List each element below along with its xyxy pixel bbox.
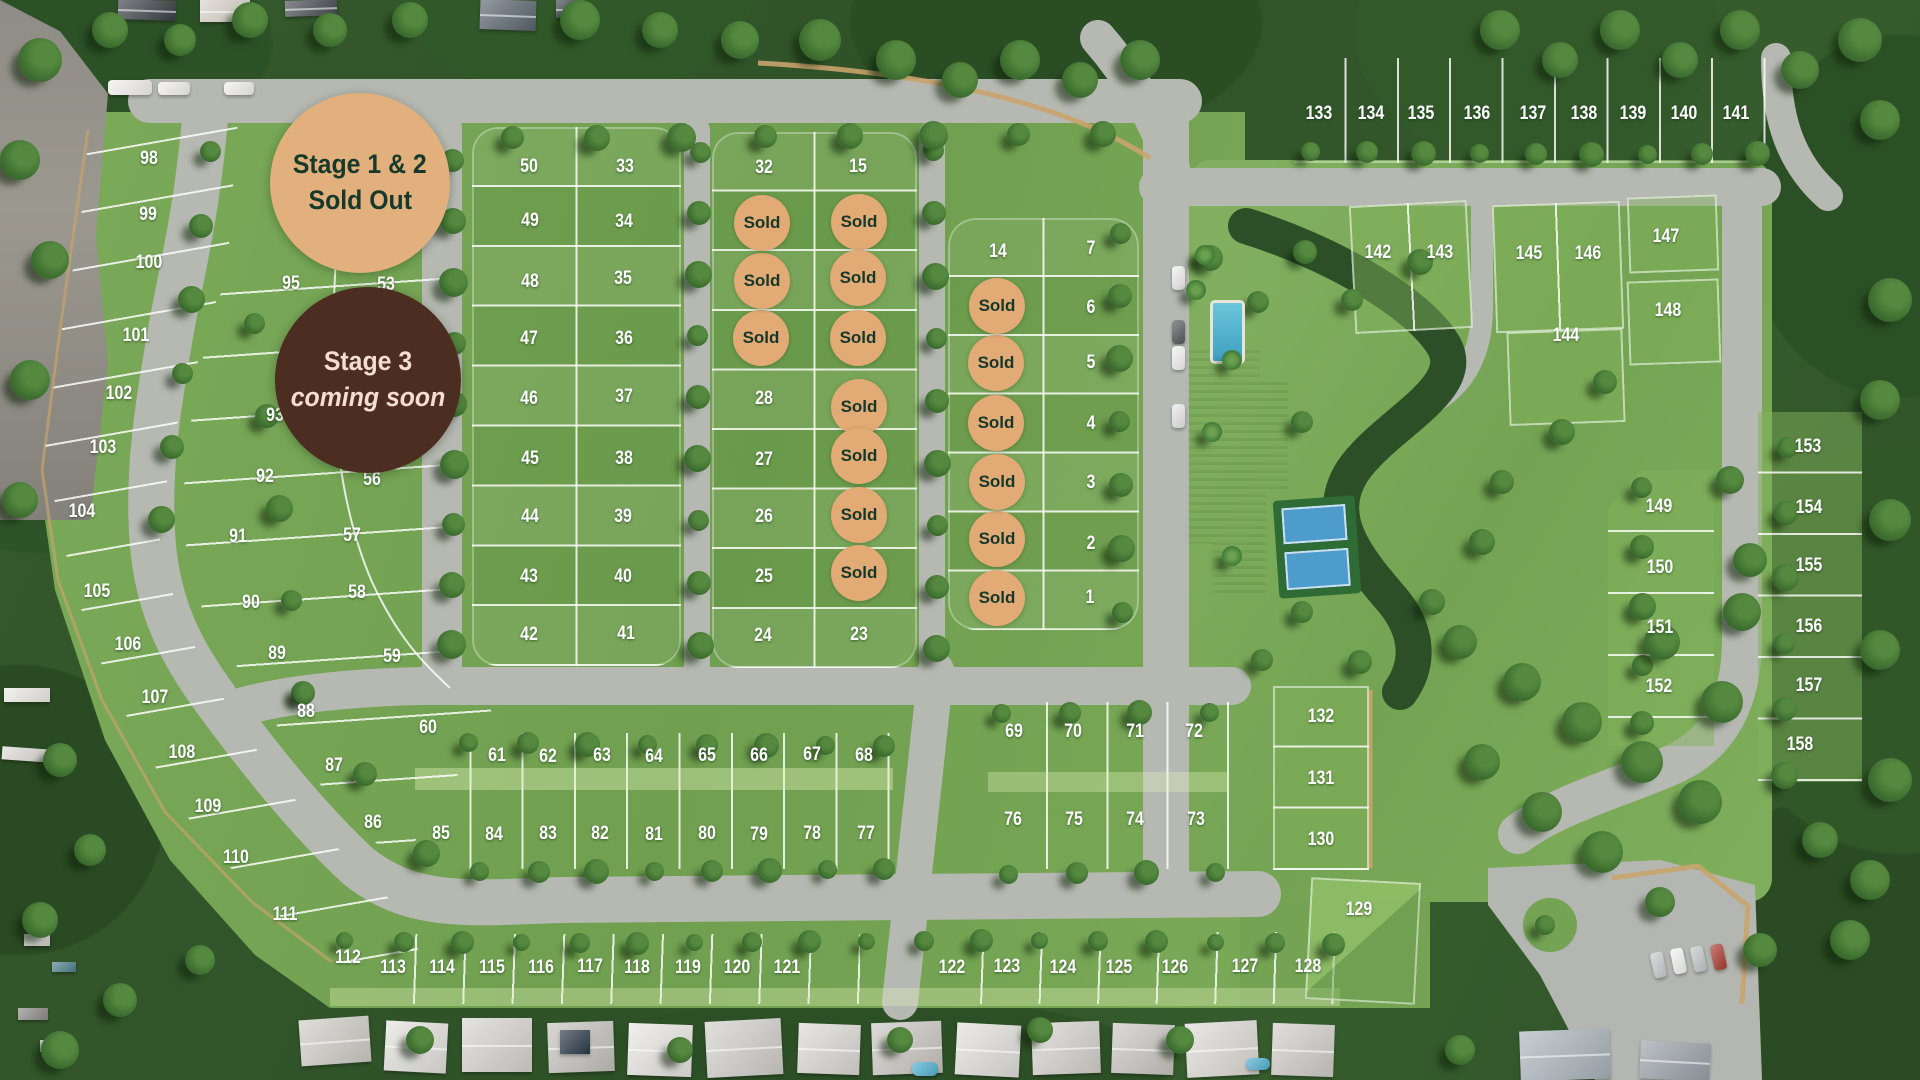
- lot-153[interactable]: 153: [1792, 436, 1824, 458]
- tree: [1469, 529, 1495, 555]
- tree: [1411, 141, 1436, 166]
- parked-car: [1172, 404, 1185, 428]
- lot-63[interactable]: 63: [591, 745, 612, 767]
- tree: [1720, 10, 1760, 50]
- tree: [876, 40, 916, 80]
- tree: [353, 762, 377, 786]
- tree: [1419, 589, 1445, 615]
- lot-122[interactable]: 122: [936, 957, 968, 979]
- lot-69[interactable]: 69: [1003, 721, 1024, 743]
- tree: [970, 929, 993, 952]
- lot-84[interactable]: 84: [483, 824, 504, 846]
- lot-41[interactable]: 41: [615, 623, 636, 645]
- tree: [1542, 42, 1578, 78]
- sold-badge-lot-16[interactable]: Sold: [831, 194, 887, 250]
- lot-151[interactable]: 151: [1644, 617, 1676, 639]
- lot-100[interactable]: 100: [133, 252, 165, 274]
- tree: [1868, 758, 1912, 802]
- house-roof: [1519, 1028, 1611, 1080]
- tree: [1166, 1026, 1194, 1054]
- lot-80[interactable]: 80: [696, 823, 717, 845]
- tree: [1733, 543, 1767, 577]
- tree: [442, 513, 465, 536]
- house-roof: [479, 0, 536, 31]
- lot-158[interactable]: 158: [1784, 734, 1816, 756]
- lot-156[interactable]: 156: [1793, 616, 1825, 638]
- stage-1-2-title: Stage 1 & 2: [293, 150, 427, 180]
- tree: [919, 121, 948, 150]
- tree: [1645, 887, 1675, 917]
- tree: [1630, 535, 1654, 559]
- lot-113[interactable]: 113: [378, 957, 409, 979]
- tree: [185, 945, 215, 975]
- tree: [923, 635, 950, 662]
- lot-24[interactable]: 24: [752, 625, 773, 647]
- tree: [22, 902, 58, 938]
- sold-badge-lot-17[interactable]: Sold: [830, 250, 886, 306]
- tree: [392, 2, 428, 38]
- tree: [2, 482, 38, 518]
- sold-badge-lot-29[interactable]: Sold: [733, 310, 789, 366]
- lot-89[interactable]: 89: [266, 643, 287, 665]
- lot-125[interactable]: 125: [1103, 957, 1135, 979]
- lot-46[interactable]: 46: [518, 388, 539, 410]
- lot-145[interactable]: 145: [1513, 243, 1545, 265]
- house-roof: [705, 1018, 784, 1078]
- tree: [942, 62, 978, 98]
- palm-tree: [1202, 422, 1222, 442]
- lot-47[interactable]: 47: [518, 328, 539, 350]
- lot-71[interactable]: 71: [1124, 721, 1145, 743]
- lot-74[interactable]: 74: [1124, 809, 1145, 831]
- lot-75[interactable]: 75: [1063, 809, 1084, 831]
- lot-112[interactable]: 112: [333, 947, 364, 969]
- lot-107[interactable]: 107: [139, 687, 171, 709]
- lot-121[interactable]: 121: [771, 957, 803, 979]
- house-roof: [797, 1023, 861, 1075]
- tree: [189, 214, 213, 238]
- lot-102[interactable]: 102: [103, 383, 135, 405]
- lot-5[interactable]: 5: [1086, 352, 1097, 374]
- house-roof: [462, 1018, 532, 1072]
- tree: [10, 360, 50, 400]
- tree: [1678, 780, 1722, 824]
- lot-91[interactable]: 91: [227, 526, 248, 548]
- lot-79[interactable]: 79: [748, 824, 769, 846]
- lot-86[interactable]: 86: [362, 812, 383, 834]
- lot-26[interactable]: 26: [753, 506, 774, 528]
- lot-146[interactable]: 146: [1572, 243, 1604, 265]
- lot-34[interactable]: 34: [613, 211, 634, 233]
- house-roof: [1111, 1023, 1175, 1075]
- lot-23[interactable]: 23: [848, 624, 869, 646]
- tree: [1341, 289, 1363, 311]
- lot-57[interactable]: 57: [341, 525, 362, 547]
- lot-59[interactable]: 59: [381, 646, 402, 668]
- tree: [887, 1027, 913, 1053]
- lot-78[interactable]: 78: [801, 823, 822, 845]
- tree: [160, 435, 184, 459]
- house-roof: [118, 0, 177, 21]
- lot-106[interactable]: 106: [112, 634, 144, 656]
- lot-133[interactable]: 133: [1303, 103, 1335, 125]
- lot-4[interactable]: 4: [1086, 413, 1097, 435]
- lot-95[interactable]: 95: [280, 273, 301, 295]
- sold-badge-lot-9[interactable]: Sold: [969, 511, 1025, 567]
- tree: [1110, 223, 1131, 244]
- lot-98[interactable]: 98: [138, 148, 159, 170]
- tree: [667, 1037, 693, 1063]
- tree: [1293, 240, 1317, 264]
- lot-144[interactable]: 144: [1550, 325, 1582, 347]
- tree: [1581, 831, 1623, 873]
- lot-114[interactable]: 114: [427, 957, 458, 979]
- lot-140[interactable]: 140: [1668, 103, 1700, 125]
- tree: [1621, 741, 1663, 783]
- lot-92[interactable]: 92: [254, 466, 275, 488]
- lot-154[interactable]: 154: [1793, 497, 1825, 519]
- tree: [1443, 625, 1477, 659]
- lot-48[interactable]: 48: [519, 271, 540, 293]
- lot-76[interactable]: 76: [1002, 809, 1023, 831]
- tree: [281, 590, 302, 611]
- tree: [0, 140, 40, 180]
- lot-67[interactable]: 67: [801, 744, 822, 766]
- tree: [1868, 278, 1912, 322]
- tree: [1445, 1035, 1475, 1065]
- lot-83[interactable]: 83: [537, 823, 558, 845]
- lot-49[interactable]: 49: [519, 210, 540, 232]
- lot-1[interactable]: 1: [1085, 587, 1096, 609]
- tree: [667, 123, 696, 152]
- lot-82[interactable]: 82: [589, 823, 610, 845]
- tree: [1134, 860, 1159, 885]
- lot-149[interactable]: 149: [1643, 496, 1675, 518]
- tree: [642, 12, 678, 48]
- backyard-pool: [1246, 1058, 1270, 1070]
- lot-37[interactable]: 37: [613, 386, 634, 408]
- lot-129[interactable]: 129: [1343, 899, 1375, 921]
- tree: [459, 733, 478, 752]
- sold-badge-lot-8[interactable]: Sold: [969, 570, 1025, 626]
- lot-40[interactable]: 40: [612, 566, 633, 588]
- stage-1-2-status: Sold Out: [308, 186, 411, 216]
- lot-104[interactable]: 104: [66, 501, 98, 523]
- stage-3-title: Stage 3: [324, 347, 412, 377]
- house-roof: [298, 1016, 371, 1067]
- lot-142[interactable]: 142: [1362, 242, 1394, 264]
- tree: [1206, 863, 1225, 882]
- lot-103[interactable]: 103: [87, 437, 119, 459]
- lot-101[interactable]: 101: [120, 325, 152, 347]
- tree: [1662, 42, 1698, 78]
- lot-120[interactable]: 120: [721, 957, 753, 979]
- lot-44[interactable]: 44: [519, 506, 540, 528]
- tree: [439, 572, 465, 598]
- lot-72[interactable]: 72: [1183, 721, 1204, 743]
- tree: [103, 983, 137, 1017]
- lot-28[interactable]: 28: [753, 388, 774, 410]
- lot-105[interactable]: 105: [81, 581, 113, 603]
- tree: [570, 933, 590, 953]
- lot-73[interactable]: 73: [1185, 809, 1206, 831]
- parked-truck: [108, 80, 152, 95]
- lot-58[interactable]: 58: [346, 582, 367, 604]
- lot-132[interactable]: 132: [1305, 706, 1337, 728]
- house-roof: [1639, 1040, 1711, 1080]
- tree: [172, 363, 193, 384]
- tree: [1600, 10, 1640, 50]
- sold-badge-lot-10[interactable]: Sold: [969, 454, 1025, 510]
- tree: [1522, 792, 1562, 832]
- lot-32[interactable]: 32: [753, 157, 774, 179]
- lot-64[interactable]: 64: [643, 746, 664, 768]
- lot-65[interactable]: 65: [696, 745, 717, 767]
- lot-87[interactable]: 87: [323, 755, 344, 777]
- lot-99[interactable]: 99: [137, 204, 158, 226]
- lot-3[interactable]: 3: [1086, 472, 1097, 494]
- lot-115[interactable]: 115: [477, 957, 508, 979]
- lot-130[interactable]: 130: [1305, 829, 1337, 851]
- tree: [1503, 663, 1541, 701]
- yard-clutter: [18, 1008, 48, 1020]
- tree: [687, 571, 711, 595]
- tree: [1830, 920, 1870, 960]
- lot-27[interactable]: 27: [753, 449, 774, 471]
- parked-car: [1172, 266, 1185, 290]
- tree: [1027, 1017, 1053, 1043]
- lot-137[interactable]: 137: [1517, 103, 1549, 125]
- stage-3-badge: Stage 3 coming soon: [275, 287, 461, 473]
- lot-15[interactable]: 15: [847, 156, 868, 178]
- lot-134[interactable]: 134: [1355, 103, 1387, 125]
- masterplan-map: 1234567SoldSoldSoldSoldSoldSold1415SoldS…: [0, 0, 1920, 1080]
- tree: [1838, 18, 1882, 62]
- lot-143[interactable]: 143: [1424, 242, 1456, 264]
- lot-111[interactable]: 111: [270, 904, 300, 926]
- lot-77[interactable]: 77: [855, 823, 876, 845]
- lot-81[interactable]: 81: [643, 824, 664, 846]
- tree: [799, 19, 841, 61]
- sold-badge-lot-11[interactable]: Sold: [968, 395, 1024, 451]
- house-roof: [955, 1022, 1022, 1077]
- tree: [686, 385, 710, 409]
- lot-152[interactable]: 152: [1643, 676, 1675, 698]
- tree: [1490, 470, 1514, 494]
- tree: [873, 735, 895, 757]
- tree: [837, 123, 863, 149]
- tree: [1860, 100, 1900, 140]
- palm-tree: [1222, 350, 1242, 370]
- lot-14[interactable]: 14: [987, 241, 1008, 263]
- lot-88[interactable]: 88: [295, 701, 316, 723]
- tree: [1464, 744, 1500, 780]
- lot-85[interactable]: 85: [430, 823, 451, 845]
- tree: [757, 858, 782, 883]
- lot-124[interactable]: 124: [1047, 957, 1079, 979]
- tree: [1860, 380, 1900, 420]
- tree: [18, 38, 62, 82]
- lot-36[interactable]: 36: [613, 328, 634, 350]
- lot-61[interactable]: 61: [486, 745, 507, 767]
- lot-155[interactable]: 155: [1793, 555, 1825, 577]
- tree: [721, 21, 759, 59]
- tree: [688, 510, 709, 531]
- tree: [1291, 601, 1313, 623]
- lot-138[interactable]: 138: [1568, 103, 1600, 125]
- lot-108[interactable]: 108: [166, 742, 198, 764]
- lot-139[interactable]: 139: [1617, 103, 1649, 125]
- lot-110[interactable]: 110: [221, 847, 252, 869]
- tree: [1200, 703, 1219, 722]
- tree: [1108, 284, 1132, 308]
- sold-badge-lot-18[interactable]: Sold: [830, 310, 886, 366]
- lot-38[interactable]: 38: [613, 448, 634, 470]
- tree: [451, 931, 474, 954]
- lot-66[interactable]: 66: [748, 745, 769, 767]
- lot-135[interactable]: 135: [1405, 103, 1437, 125]
- sold-badge-lot-31[interactable]: Sold: [734, 195, 790, 251]
- tree: [584, 125, 610, 151]
- lot-42[interactable]: 42: [518, 624, 539, 646]
- sold-badge-lot-20[interactable]: Sold: [831, 428, 887, 484]
- lot-148[interactable]: 148: [1652, 300, 1684, 322]
- solar-panels: [560, 1030, 590, 1054]
- palm-tree: [1186, 280, 1206, 300]
- palm-tree: [1222, 546, 1242, 566]
- tree: [1701, 681, 1743, 723]
- parked-truck: [224, 82, 254, 95]
- lot-119[interactable]: 119: [673, 957, 704, 979]
- tree: [626, 932, 649, 955]
- tree: [858, 933, 875, 950]
- tree: [924, 450, 951, 477]
- tree: [1112, 602, 1133, 623]
- tree: [1632, 655, 1653, 676]
- tree: [41, 1031, 79, 1069]
- sold-badge-lot-30[interactable]: Sold: [734, 253, 790, 309]
- tree: [798, 930, 821, 953]
- tree: [818, 860, 837, 879]
- lot-141[interactable]: 141: [1720, 103, 1752, 125]
- lot-116[interactable]: 116: [526, 957, 557, 979]
- tree: [1062, 62, 1098, 98]
- tree: [914, 931, 934, 951]
- lot-157[interactable]: 157: [1793, 675, 1825, 697]
- lot-50[interactable]: 50: [518, 156, 539, 178]
- tree: [1743, 933, 1777, 967]
- tennis-courts: [1273, 495, 1362, 598]
- tree: [1535, 915, 1555, 935]
- tree: [1771, 762, 1798, 789]
- lot-62[interactable]: 62: [537, 746, 558, 768]
- sold-badge-lot-22[interactable]: Sold: [831, 545, 887, 601]
- lot-68[interactable]: 68: [853, 745, 874, 767]
- lot-25[interactable]: 25: [753, 566, 774, 588]
- tree: [313, 13, 347, 47]
- lot-70[interactable]: 70: [1062, 721, 1083, 743]
- lot-131[interactable]: 131: [1305, 768, 1337, 790]
- tree: [687, 632, 714, 659]
- tree: [74, 834, 106, 866]
- sold-badge-lot-13[interactable]: Sold: [969, 278, 1025, 334]
- tree: [1745, 141, 1770, 166]
- lot-123[interactable]: 123: [991, 956, 1023, 978]
- lot-39[interactable]: 39: [612, 506, 633, 528]
- yard-clutter: [4, 688, 50, 702]
- tree: [1850, 860, 1890, 900]
- lot-60[interactable]: 60: [417, 717, 438, 739]
- palm-tree: [1195, 245, 1215, 265]
- tree: [244, 313, 265, 334]
- tree: [1120, 40, 1160, 80]
- tree: [1802, 822, 1838, 858]
- backyard-pool: [912, 1062, 938, 1076]
- tree: [1088, 931, 1108, 951]
- tree: [1356, 141, 1378, 163]
- tree: [1090, 121, 1116, 147]
- stage-3-status: coming soon: [291, 383, 446, 413]
- tree: [1593, 370, 1617, 394]
- sold-badge-lot-19[interactable]: Sold: [831, 379, 887, 435]
- lot-126[interactable]: 126: [1159, 957, 1191, 979]
- tree: [232, 2, 268, 38]
- tree: [1638, 145, 1657, 164]
- tree: [406, 1026, 434, 1054]
- lot-45[interactable]: 45: [519, 448, 540, 470]
- lot-33[interactable]: 33: [614, 156, 635, 178]
- lot-147[interactable]: 147: [1650, 226, 1682, 248]
- tree: [266, 495, 293, 522]
- tree: [1109, 473, 1133, 497]
- tree: [1301, 142, 1320, 161]
- lot-117[interactable]: 117: [575, 956, 606, 978]
- tree: [927, 515, 948, 536]
- tree: [440, 450, 469, 479]
- stage-1-2-badge: Stage 1 & 2 Sold Out: [270, 93, 450, 273]
- lot-6[interactable]: 6: [1086, 297, 1097, 319]
- tree: [926, 328, 947, 349]
- tree: [1322, 933, 1345, 956]
- lot-2[interactable]: 2: [1086, 533, 1097, 555]
- lot-118[interactable]: 118: [622, 957, 653, 979]
- lot-127[interactable]: 127: [1229, 956, 1261, 978]
- lot-7[interactable]: 7: [1086, 238, 1097, 260]
- parked-car: [1172, 320, 1185, 344]
- tree: [1716, 466, 1744, 494]
- tree: [1251, 649, 1273, 671]
- tree: [528, 861, 550, 883]
- tree: [1348, 650, 1372, 674]
- tree: [999, 865, 1018, 884]
- parked-truck: [158, 82, 190, 95]
- sold-badge-lot-12[interactable]: Sold: [968, 335, 1024, 391]
- house-roof: [1271, 1023, 1335, 1077]
- tree: [200, 141, 221, 162]
- lot-128[interactable]: 128: [1292, 956, 1324, 978]
- tree: [164, 24, 196, 56]
- lot-150[interactable]: 150: [1644, 557, 1676, 579]
- lot-90[interactable]: 90: [240, 592, 261, 614]
- tree: [43, 743, 77, 777]
- lot-43[interactable]: 43: [518, 566, 539, 588]
- lot-35[interactable]: 35: [612, 268, 633, 290]
- tree: [92, 12, 128, 48]
- sold-badge-lot-21[interactable]: Sold: [831, 487, 887, 543]
- tree: [685, 261, 712, 288]
- lot-136[interactable]: 136: [1461, 103, 1493, 125]
- lot-109[interactable]: 109: [192, 796, 224, 818]
